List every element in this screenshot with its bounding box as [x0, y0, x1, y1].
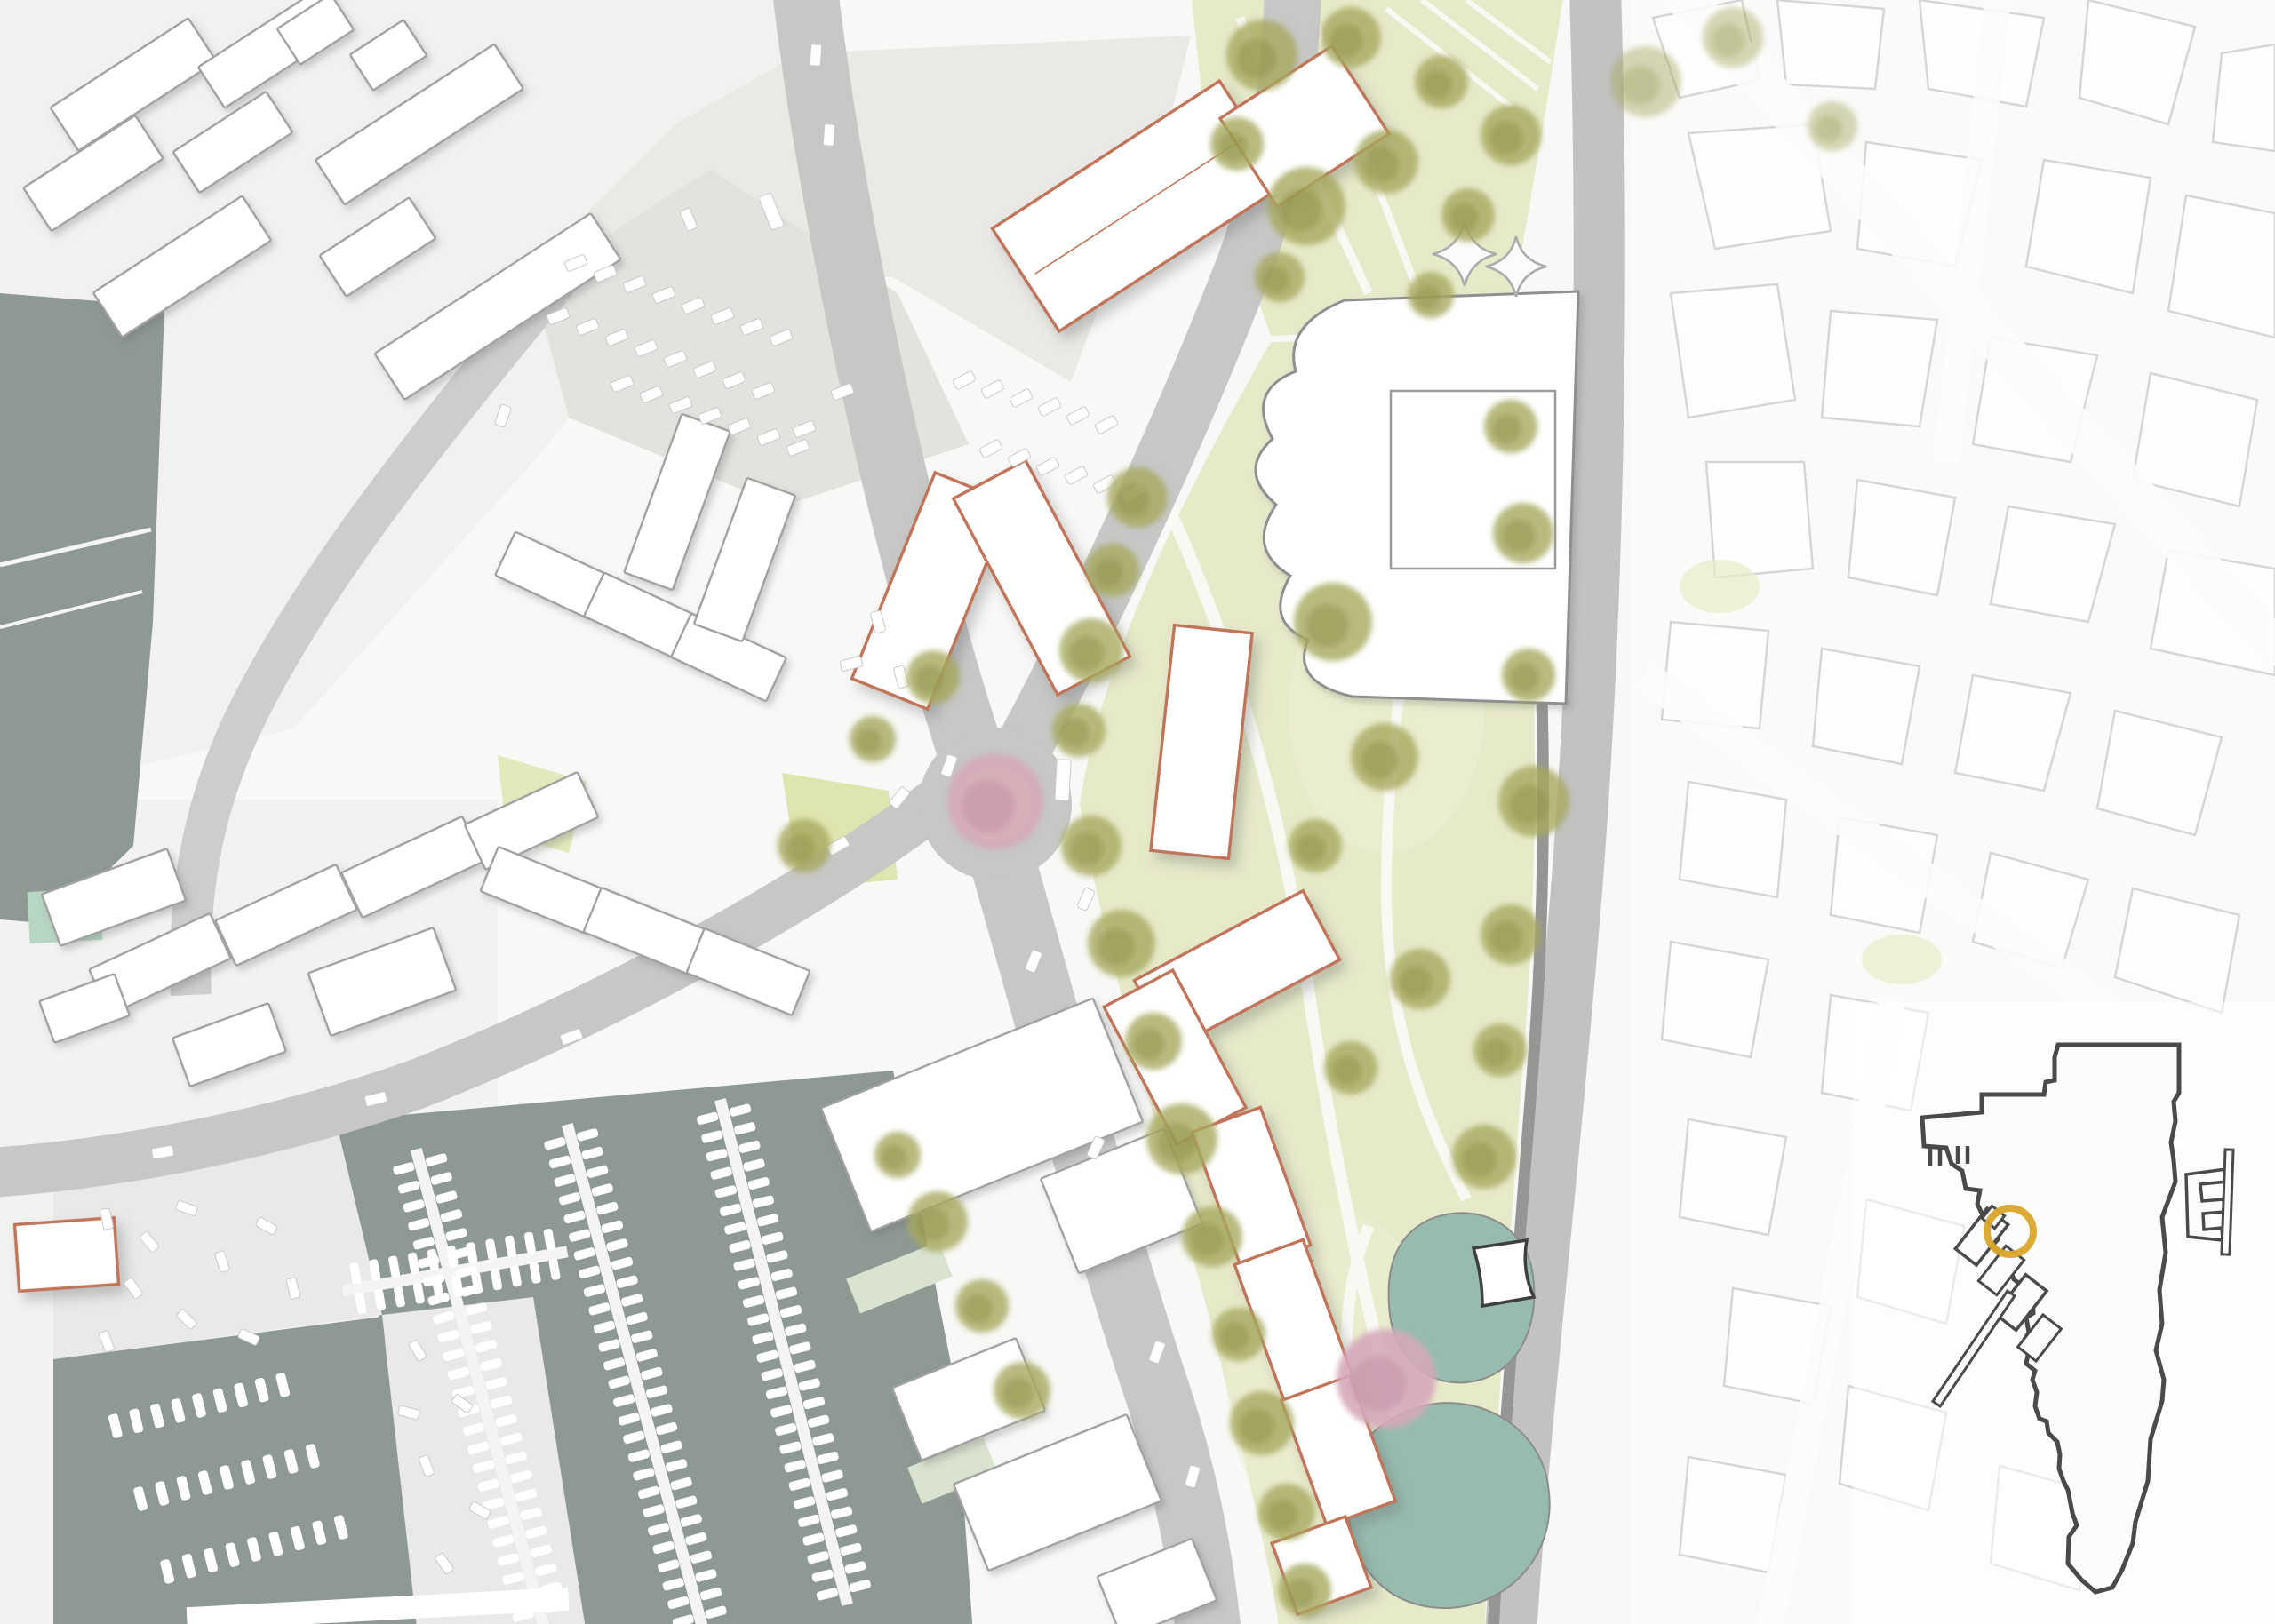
annotation-callouts	[0, 0, 2275, 1624]
site-plan	[0, 0, 2275, 1624]
